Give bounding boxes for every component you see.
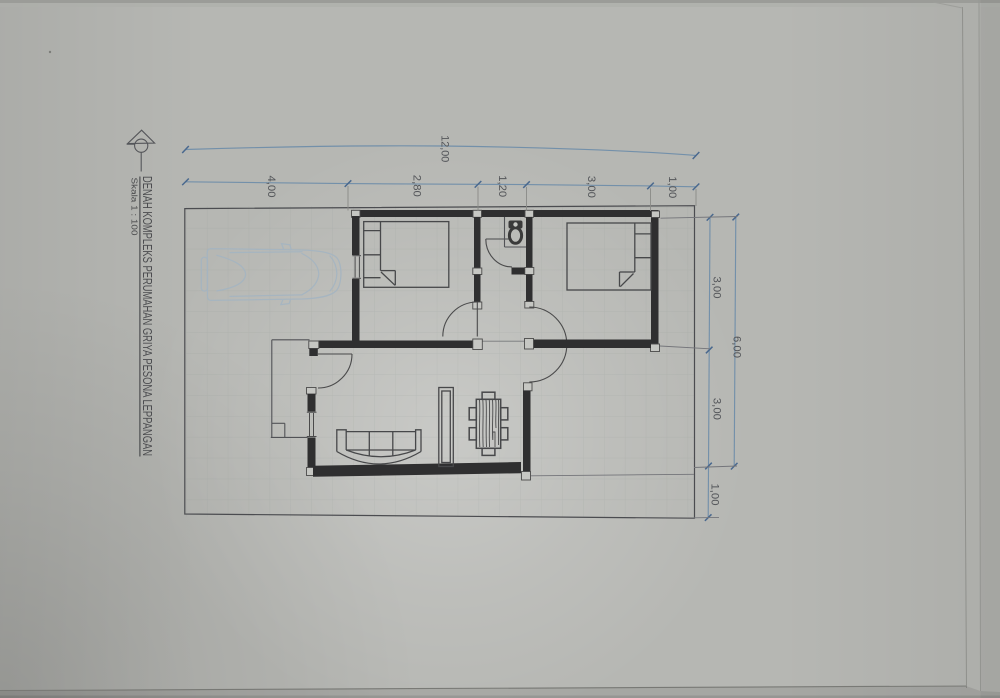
svg-text:3,00: 3,00 (710, 277, 722, 299)
svg-text:4,00: 4,00 (265, 176, 277, 198)
svg-text:1,00: 1,00 (709, 484, 721, 506)
svg-text:6,00: 6,00 (731, 336, 743, 358)
svg-text:3,00: 3,00 (585, 176, 597, 198)
svg-text:2,80: 2,80 (411, 175, 423, 197)
svg-text:3,00: 3,00 (710, 398, 722, 420)
svg-text:1,00: 1,00 (666, 176, 678, 198)
svg-text:Skala 1 : 100: Skala 1 : 100 (130, 178, 139, 237)
svg-text:12,00: 12,00 (438, 135, 450, 162)
svg-text:1,20: 1,20 (496, 175, 508, 197)
svg-text:DENAH KOMPLEKS PERUMAHAN GRIYA: DENAH KOMPLEKS PERUMAHAN GRIYA PESONA LE… (140, 176, 154, 456)
